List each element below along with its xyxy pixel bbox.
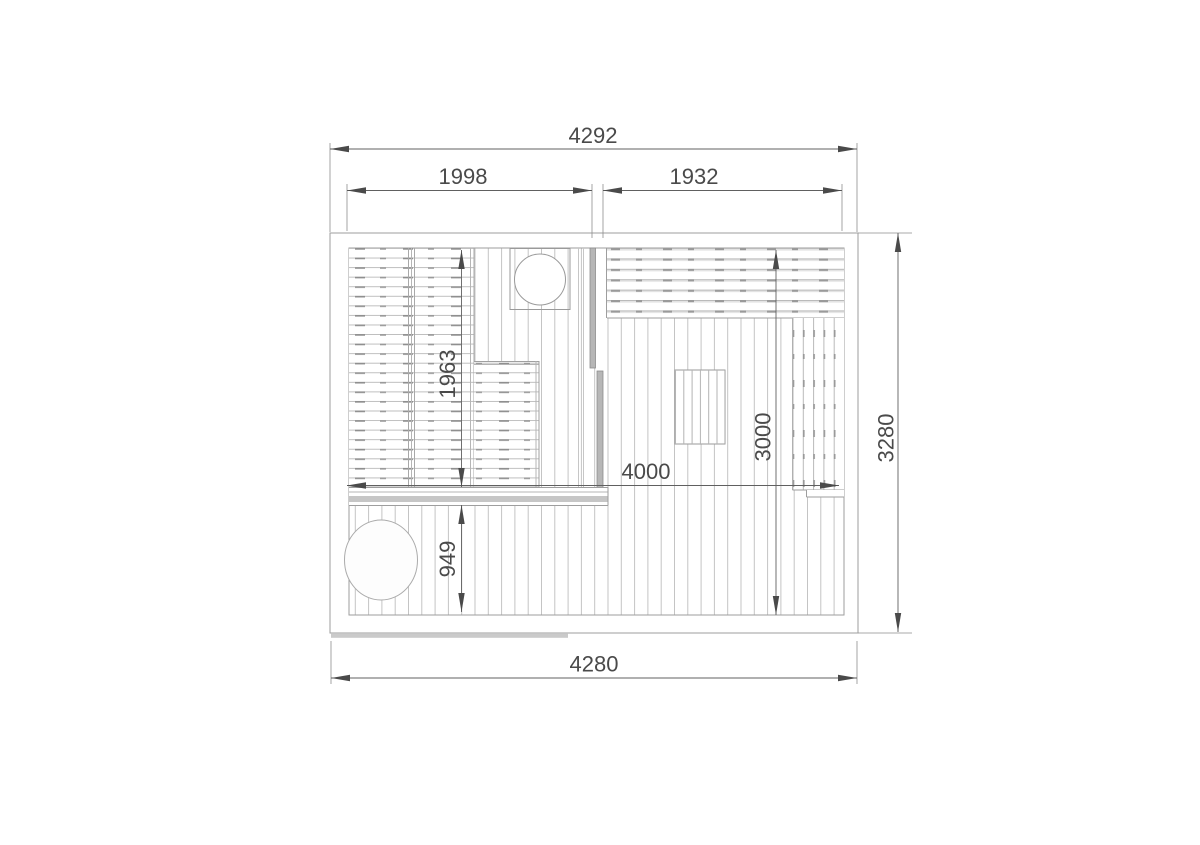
dim-label-overall-depth: 3280 bbox=[874, 414, 899, 463]
dim-label-interior-width: 4000 bbox=[622, 459, 671, 484]
dim-label-overall-width-bottom: 4280 bbox=[570, 652, 619, 677]
sauna-front-edge bbox=[349, 487, 608, 506]
dim-label-bench-length: 1963 bbox=[435, 350, 460, 399]
dimension-arrow bbox=[895, 233, 901, 252]
door-leaf bbox=[597, 371, 603, 490]
glass-wall bbox=[590, 248, 596, 368]
dimension-arrow bbox=[895, 613, 901, 632]
dim-label-interior-depth: 3000 bbox=[751, 413, 776, 462]
dimension-arrow bbox=[573, 187, 592, 193]
heater-circle-icon bbox=[515, 254, 566, 305]
sauna-bench-step bbox=[474, 361, 539, 487]
dimension-arrow bbox=[838, 675, 857, 681]
dim-label-left-section: 1998 bbox=[439, 164, 488, 189]
round-tub bbox=[345, 520, 418, 600]
terrace-side-bench bbox=[793, 318, 845, 497]
dimension-arrow bbox=[330, 146, 349, 152]
shadow-lines bbox=[331, 634, 568, 638]
dimension-arrow bbox=[347, 187, 366, 193]
dim-label-overall-width-top: 4292 bbox=[569, 123, 618, 148]
dimension-arrow bbox=[603, 187, 622, 193]
dim-label-right-section: 1932 bbox=[670, 164, 719, 189]
floor-plan-page: 4292 1998 1932 4000 4280 1963 949 3000 3… bbox=[0, 0, 1200, 845]
floor-plan-drawing: 4292 1998 1932 4000 4280 1963 949 3000 3… bbox=[0, 0, 1200, 845]
dimension-arrow bbox=[331, 675, 350, 681]
dimension-arrow bbox=[823, 187, 842, 193]
slatted-table bbox=[675, 370, 725, 444]
terrace-top-bench bbox=[607, 248, 844, 318]
dimension-arrow bbox=[838, 146, 857, 152]
dim-label-terrace-depth: 949 bbox=[435, 541, 460, 578]
